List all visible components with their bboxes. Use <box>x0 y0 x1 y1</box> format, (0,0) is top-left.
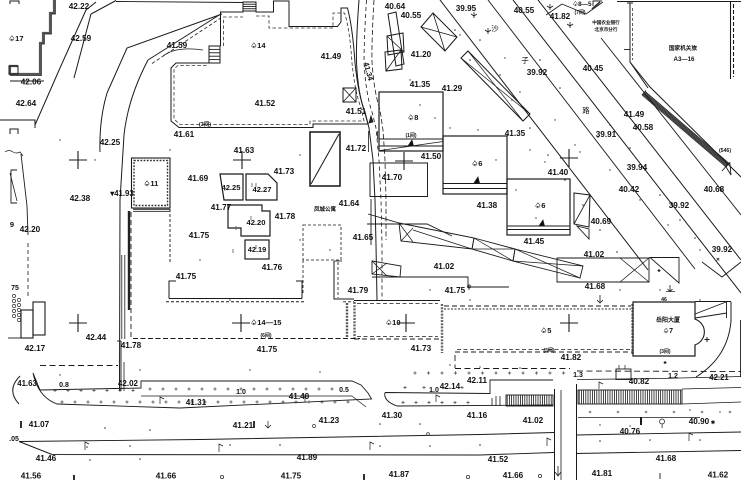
svg-text:▾41.93: ▾41.93 <box>109 189 134 198</box>
svg-text:41.72: 41.72 <box>346 144 367 153</box>
svg-text:41.38: 41.38 <box>477 201 498 210</box>
svg-text:42.11: 42.11 <box>467 376 487 385</box>
svg-text:42.64: 42.64 <box>16 99 37 108</box>
svg-text:40.68: 40.68 <box>704 185 725 194</box>
svg-text:41.89: 41.89 <box>297 453 318 462</box>
svg-text:41.56: 41.56 <box>21 472 42 480</box>
svg-text:A3—16: A3—16 <box>674 56 696 63</box>
svg-text:♤14: ♤14 <box>250 41 266 50</box>
svg-text:1.0: 1.0 <box>429 387 439 394</box>
svg-text:41.66: 41.66 <box>156 472 177 480</box>
svg-text:41.63: 41.63 <box>17 379 37 388</box>
svg-text:41.68: 41.68 <box>585 282 606 291</box>
svg-text:40.55: 40.55 <box>401 11 422 20</box>
svg-text:39.95: 39.95 <box>456 4 477 13</box>
svg-text:♤8—5: ♤8—5 <box>573 1 592 8</box>
svg-text:39.92: 39.92 <box>669 201 690 210</box>
svg-text:40.76: 40.76 <box>620 427 641 436</box>
svg-text:41.75: 41.75 <box>257 345 278 354</box>
svg-text:(546): (546) <box>719 148 731 154</box>
svg-text:41.63: 41.63 <box>234 146 255 155</box>
svg-text:39.94: 39.94 <box>627 163 648 172</box>
svg-text:42.38: 42.38 <box>70 194 91 203</box>
svg-text:40.69: 40.69 <box>591 217 612 226</box>
svg-text:42.20: 42.20 <box>20 225 41 234</box>
svg-text:41.64: 41.64 <box>339 199 360 208</box>
svg-text:41.50: 41.50 <box>421 152 442 161</box>
svg-text:41.78: 41.78 <box>121 341 142 350</box>
svg-text:42.44: 42.44 <box>86 333 107 342</box>
svg-text:41.40: 41.40 <box>289 392 310 401</box>
svg-text:42.02: 42.02 <box>118 379 139 388</box>
svg-text:41.69: 41.69 <box>188 174 209 183</box>
svg-text:41.73: 41.73 <box>274 167 295 176</box>
svg-text:(6间): (6间) <box>260 332 271 339</box>
svg-text:♤11: ♤11 <box>144 179 159 188</box>
svg-text:40.82: 40.82 <box>629 377 650 386</box>
svg-text:41.29: 41.29 <box>442 84 463 93</box>
svg-text:42.14: 42.14 <box>440 382 461 391</box>
svg-text:41.23: 41.23 <box>319 416 340 425</box>
svg-text:41.52: 41.52 <box>255 99 276 108</box>
svg-text:41.46: 41.46 <box>36 454 57 463</box>
svg-text:40.55: 40.55 <box>514 6 535 15</box>
svg-text:子: 子 <box>521 56 529 65</box>
svg-text:41.75: 41.75 <box>176 272 197 281</box>
svg-text:♤6: ♤6 <box>472 159 483 168</box>
svg-text:41.81: 41.81 <box>592 469 613 478</box>
svg-text:(3间): (3间) <box>659 348 670 355</box>
svg-text:42.20: 42.20 <box>246 218 265 227</box>
svg-text:国家机关旅: 国家机关旅 <box>669 44 697 52</box>
svg-text:41.02: 41.02 <box>523 416 544 425</box>
svg-text:40.90: 40.90 <box>689 417 710 426</box>
svg-text:♤7: ♤7 <box>663 327 673 335</box>
svg-text:41.02: 41.02 <box>584 250 605 259</box>
svg-text:40.58: 40.58 <box>633 123 654 132</box>
svg-text:42.25: 42.25 <box>221 183 241 192</box>
svg-text:41.70: 41.70 <box>382 173 403 182</box>
svg-text:♤5: ♤5 <box>541 326 552 335</box>
svg-text:42.25: 42.25 <box>100 138 121 147</box>
svg-text:42.59: 42.59 <box>71 34 92 43</box>
svg-text:41.82: 41.82 <box>561 353 582 362</box>
svg-text:41.73: 41.73 <box>411 344 432 353</box>
svg-text:41.30: 41.30 <box>382 411 403 420</box>
svg-text:41.79: 41.79 <box>348 286 369 295</box>
svg-text:41.20: 41.20 <box>411 50 432 59</box>
svg-text:41.21: 41.21 <box>233 421 254 430</box>
svg-text:♤14—15: ♤14—15 <box>251 318 282 327</box>
svg-text:41.07: 41.07 <box>29 420 50 429</box>
svg-text:(7间): (7间) <box>574 9 585 16</box>
svg-text:路: 路 <box>582 105 590 115</box>
svg-text:中国农业银行: 中国农业银行 <box>592 19 620 26</box>
svg-text:(3间): (3间) <box>543 347 554 354</box>
svg-text:✕: ✕ <box>716 257 720 263</box>
svg-text:42.17: 42.17 <box>25 344 46 353</box>
svg-text:41.87: 41.87 <box>389 470 410 479</box>
svg-text:41.49: 41.49 <box>321 52 342 61</box>
svg-text:岳阳大厦: 岳阳大厦 <box>656 316 681 324</box>
svg-text:41.82: 41.82 <box>550 12 571 21</box>
svg-text:♤6: ♤6 <box>535 201 546 210</box>
svg-text:41.45: 41.45 <box>524 237 545 246</box>
svg-text:41.68: 41.68 <box>656 454 677 463</box>
svg-text:40.42: 40.42 <box>619 185 640 194</box>
svg-text:40.45: 40.45 <box>583 64 604 73</box>
svg-text:40.64: 40.64 <box>385 2 406 11</box>
svg-text:41.35: 41.35 <box>410 80 431 89</box>
svg-text:41.31: 41.31 <box>186 398 207 407</box>
svg-text:41.35: 41.35 <box>505 129 526 138</box>
svg-text:42.27: 42.27 <box>252 185 271 194</box>
svg-text:41.02: 41.02 <box>434 262 455 271</box>
svg-text:41.16: 41.16 <box>467 411 488 420</box>
svg-text:46: 46 <box>661 297 667 303</box>
svg-text:0.5: 0.5 <box>339 387 349 394</box>
svg-text:41.75: 41.75 <box>445 286 466 295</box>
svg-text:41.76: 41.76 <box>262 263 283 272</box>
svg-text:41.52: 41.52 <box>488 455 509 464</box>
svg-text:39.91: 39.91 <box>596 130 617 139</box>
svg-text:(1间): (1间) <box>405 132 416 139</box>
svg-text:75: 75 <box>11 285 19 292</box>
svg-text:41.66: 41.66 <box>503 471 524 480</box>
svg-text:39.92: 39.92 <box>527 68 548 77</box>
svg-text:41.40: 41.40 <box>548 168 569 177</box>
svg-text:41.75: 41.75 <box>189 231 210 240</box>
svg-text:41.77: 41.77 <box>211 203 232 212</box>
svg-text:沙: 沙 <box>491 24 499 33</box>
svg-text:.05: .05 <box>9 436 19 443</box>
svg-text:41.49: 41.49 <box>624 110 645 119</box>
svg-text:1.0: 1.0 <box>236 389 246 396</box>
svg-text:41.78: 41.78 <box>275 212 296 221</box>
svg-text:1.2: 1.2 <box>668 373 678 380</box>
svg-text:1.3: 1.3 <box>573 372 583 379</box>
svg-text:42.06: 42.06 <box>21 78 42 87</box>
svg-text:9: 9 <box>10 220 14 229</box>
svg-text:北京市分行: 北京市分行 <box>595 26 618 33</box>
svg-text:39.92: 39.92 <box>712 245 733 254</box>
svg-text:41.65: 41.65 <box>353 233 374 242</box>
svg-text:♤8: ♤8 <box>408 113 419 122</box>
svg-text:41.62: 41.62 <box>708 471 729 480</box>
svg-text:0.8: 0.8 <box>59 382 69 389</box>
svg-text:(3间): (3间) <box>199 120 211 128</box>
svg-text:凤城公寓: 凤城公寓 <box>314 205 337 213</box>
svg-text:♤17: ♤17 <box>8 34 23 43</box>
svg-text:42.19: 42.19 <box>248 245 267 254</box>
svg-text:41.61: 41.61 <box>174 130 195 139</box>
svg-text:41.75: 41.75 <box>281 472 302 480</box>
